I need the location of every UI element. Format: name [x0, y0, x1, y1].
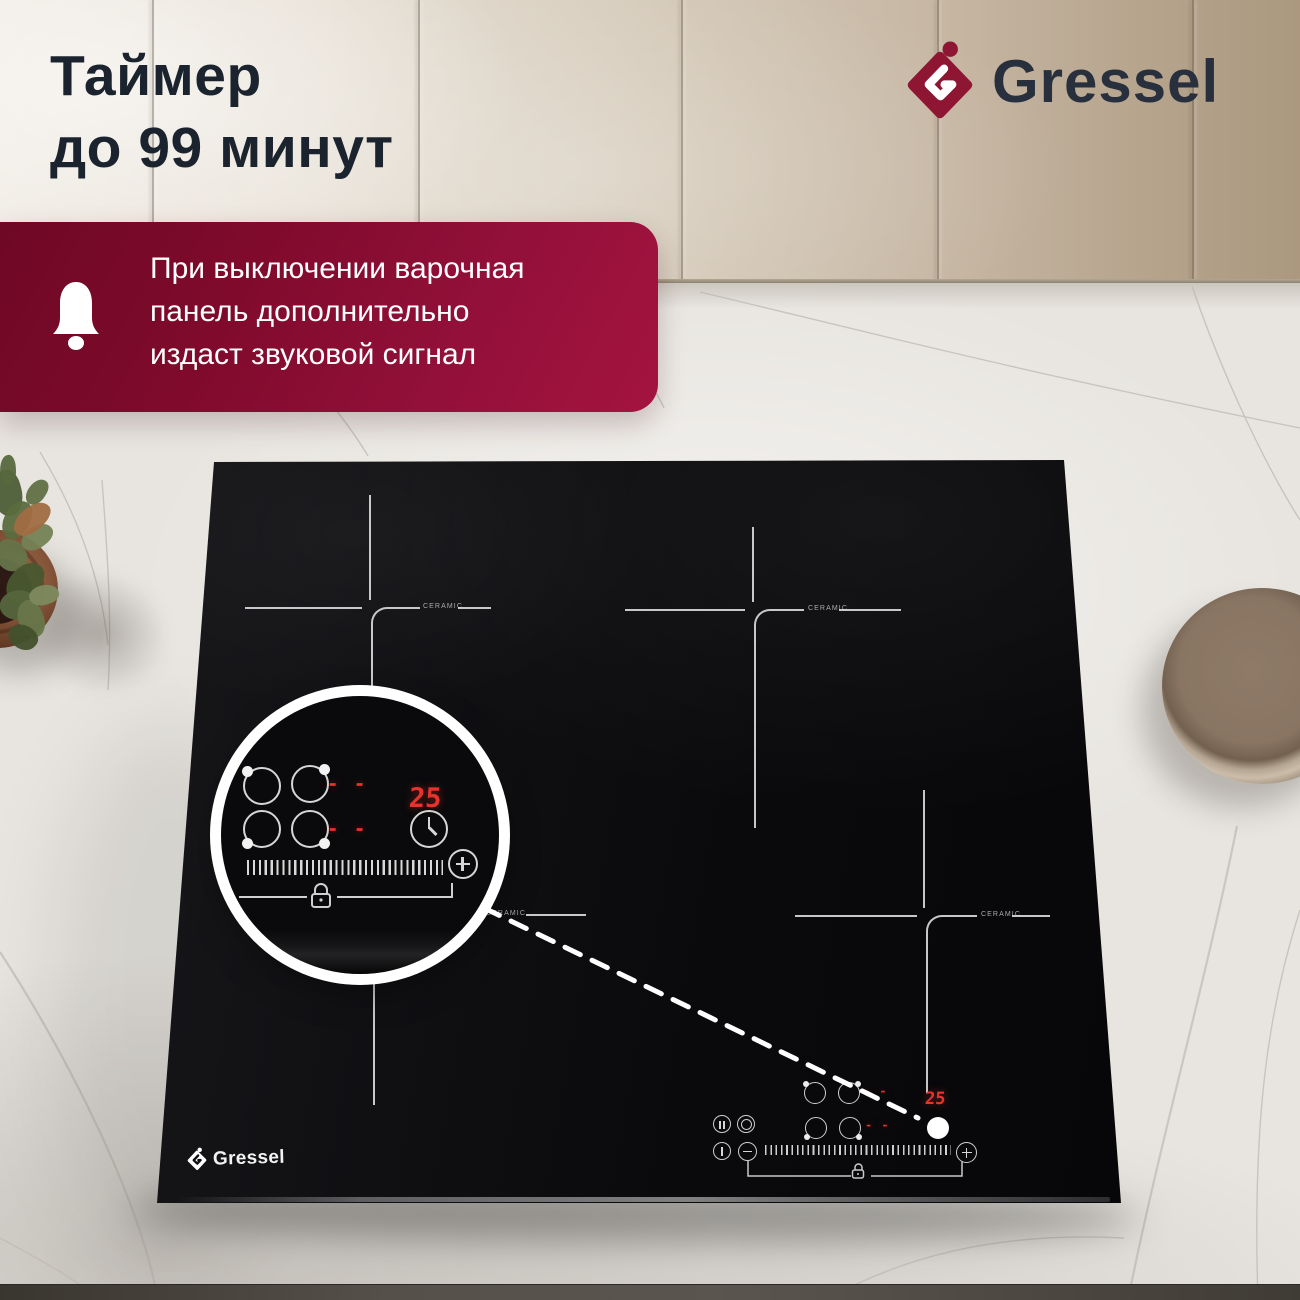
counter-front-edge — [0, 1284, 1300, 1300]
banner-text: При выключении варочная панель дополните… — [150, 247, 525, 376]
info-banner: При выключении варочная панель дополните… — [0, 222, 658, 412]
banner-line: При выключении варочная — [150, 247, 525, 290]
page-title: Таймер до 99 минут — [50, 40, 394, 184]
promo-scene: CERAMIC CERAMIC CERAMIC CERAMIC — [0, 0, 1300, 1300]
banner-line: издаст звуковой сигнал — [150, 333, 525, 376]
brand-logo: Gressel — [902, 40, 1219, 128]
brand-name: Gressel — [992, 40, 1219, 112]
bell-icon — [52, 280, 100, 352]
highlighted-timer-button — [927, 1117, 949, 1139]
headline-line: Таймер — [50, 40, 394, 112]
banner-line: панель дополнительно — [150, 290, 525, 333]
gressel-logo-icon — [902, 40, 978, 128]
headline-line: до 99 минут — [50, 112, 394, 184]
callout-pointer — [0, 0, 1300, 1300]
